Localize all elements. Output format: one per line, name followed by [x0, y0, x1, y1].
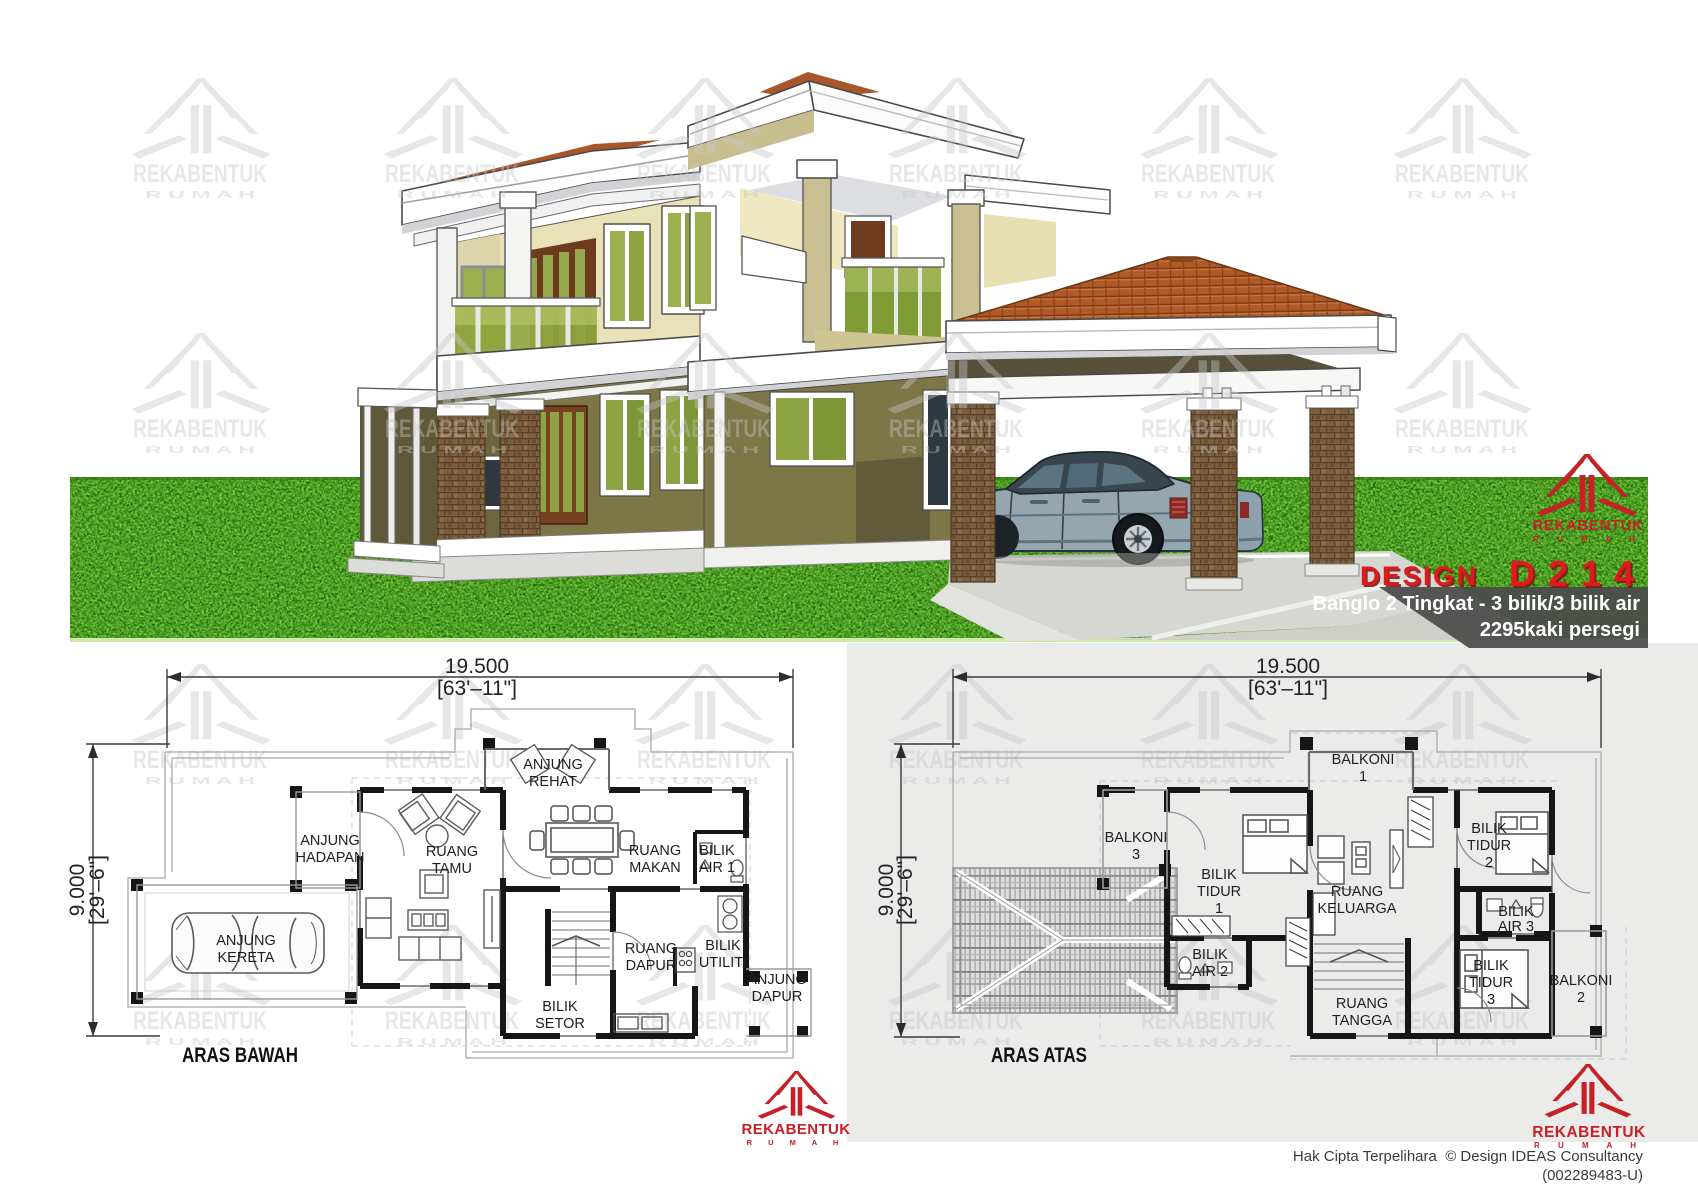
- svg-text:19.500: 19.500: [1256, 655, 1320, 678]
- svg-text:TIDUR: TIDUR: [1467, 838, 1511, 854]
- svg-text:RUANG: RUANG: [1331, 884, 1383, 900]
- svg-text:Hak Cipta Terpelihara © Desig: Hak Cipta Terpelihara © Design IDEAS Con…: [1293, 1148, 1644, 1165]
- svg-text:HADAPAN: HADAPAN: [295, 850, 364, 866]
- svg-text:BILIK: BILIK: [1471, 821, 1507, 837]
- svg-text:ARAS BAWAH: ARAS BAWAH: [182, 1043, 298, 1067]
- svg-text:3: 3: [1132, 847, 1140, 863]
- svg-text:REKABENTUK: REKABENTUK: [1533, 517, 1644, 534]
- svg-text:REKABENTUK: REKABENTUK: [1532, 1124, 1646, 1141]
- svg-text:ANJUNG: ANJUNG: [216, 933, 276, 949]
- svg-text:RUANG: RUANG: [629, 843, 681, 859]
- svg-text:TANGGA: TANGGA: [1332, 1013, 1392, 1029]
- svg-text:BILIK: BILIK: [542, 999, 578, 1015]
- svg-text:MAKAN: MAKAN: [629, 860, 681, 876]
- svg-text:DAPUR: DAPUR: [752, 989, 803, 1005]
- svg-text:[29'–6"]: [29'–6"]: [894, 855, 917, 925]
- svg-text:ANJUNG: ANJUNG: [747, 972, 807, 988]
- svg-text:SETOR: SETOR: [535, 1016, 585, 1032]
- svg-text:ANJUNG: ANJUNG: [523, 757, 583, 773]
- svg-text:KERETA: KERETA: [218, 950, 275, 966]
- svg-text:BALKONI: BALKONI: [1550, 973, 1613, 989]
- svg-text:R U M A H: R U M A H: [747, 1138, 846, 1147]
- svg-text:[63'–11"]: [63'–11"]: [1248, 677, 1328, 700]
- svg-text:Banglo 2 Tingkat - 3 bilik/3 b: Banglo 2 Tingkat - 3 bilik/3 bilik air: [1313, 593, 1641, 615]
- svg-text:ANJUNG: ANJUNG: [300, 833, 360, 849]
- svg-text:19.500: 19.500: [445, 655, 509, 678]
- svg-text:DESIGN: DESIGN: [1360, 561, 1479, 591]
- svg-text:ARAS ATAS: ARAS ATAS: [991, 1043, 1087, 1067]
- svg-text:1: 1: [1215, 901, 1223, 917]
- svg-text:(002289483-U): (002289483-U): [1542, 1167, 1643, 1184]
- svg-text:KELUARGA: KELUARGA: [1318, 901, 1397, 917]
- svg-text:REHAT: REHAT: [529, 774, 577, 790]
- svg-text:TIDUR: TIDUR: [1197, 884, 1241, 900]
- svg-text:BILIK: BILIK: [1201, 867, 1237, 883]
- svg-text:BILIK: BILIK: [699, 843, 735, 859]
- svg-text:[63'–11"]: [63'–11"]: [437, 677, 517, 700]
- svg-text:BILIK: BILIK: [705, 938, 741, 954]
- svg-text:BILIK: BILIK: [1192, 947, 1228, 963]
- svg-text:BILIK: BILIK: [1473, 958, 1509, 974]
- svg-text:TIDUR: TIDUR: [1469, 975, 1513, 991]
- svg-text:RUANG: RUANG: [1336, 996, 1388, 1012]
- svg-text:UTILITI: UTILITI: [699, 955, 747, 971]
- svg-text:AIR 2: AIR 2: [1192, 964, 1228, 980]
- svg-text:1: 1: [1359, 769, 1367, 785]
- svg-text:3: 3: [1487, 992, 1495, 1008]
- svg-text:2: 2: [1577, 990, 1585, 1006]
- svg-text:R U M A H: R U M A H: [1533, 535, 1643, 544]
- svg-text:D214: D214: [1509, 553, 1647, 594]
- svg-text:TAMU: TAMU: [432, 861, 472, 877]
- svg-text:BALKONI: BALKONI: [1105, 830, 1168, 846]
- svg-text:DAPUR: DAPUR: [626, 958, 677, 974]
- svg-text:AIR 3: AIR 3: [1498, 919, 1534, 935]
- svg-text:REKABENTUK: REKABENTUK: [742, 1121, 851, 1138]
- svg-text:2295kaki persegi: 2295kaki persegi: [1480, 619, 1640, 641]
- svg-text:BILIK: BILIK: [1498, 904, 1534, 920]
- svg-text:RUANG: RUANG: [426, 844, 478, 860]
- svg-text:BALKONI: BALKONI: [1332, 752, 1395, 768]
- svg-text:RUANG: RUANG: [625, 941, 677, 957]
- svg-text:2: 2: [1485, 855, 1493, 871]
- svg-text:AIR 1: AIR 1: [699, 860, 735, 876]
- svg-text:[29'–6"]: [29'–6"]: [86, 855, 109, 925]
